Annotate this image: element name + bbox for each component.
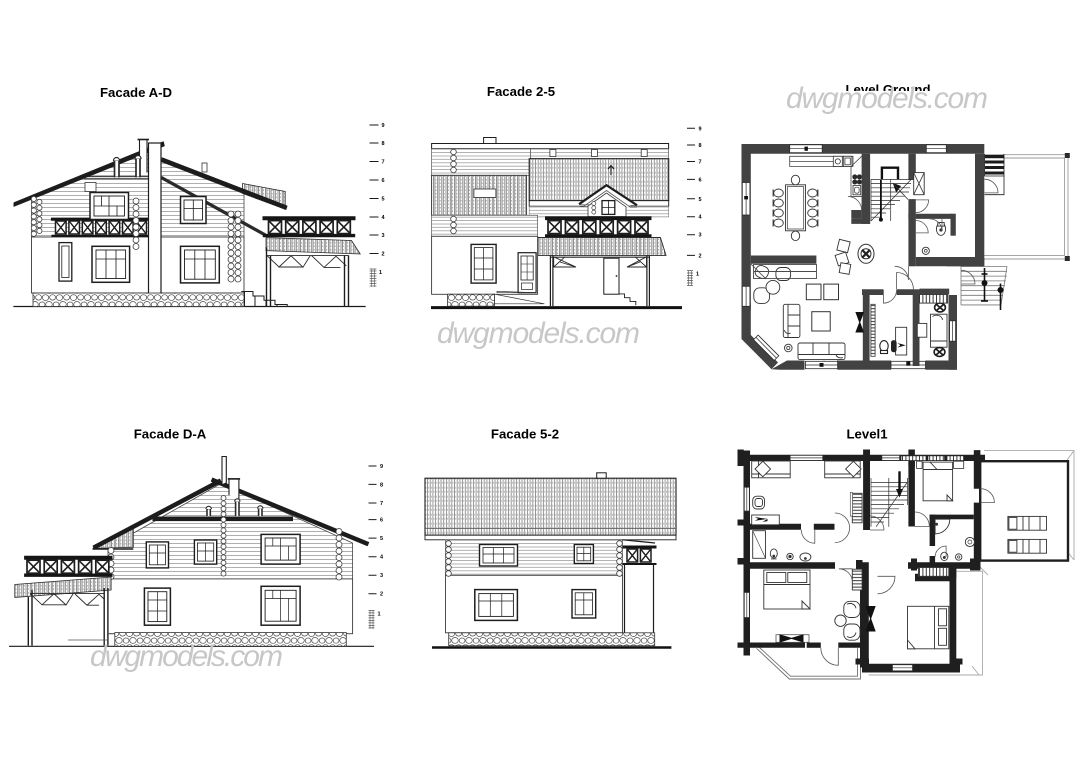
svg-text:Facade A-D: Facade A-D xyxy=(100,85,172,100)
svg-text:3: 3 xyxy=(382,233,385,239)
svg-text:2: 2 xyxy=(699,253,702,259)
svg-text:3: 3 xyxy=(380,573,383,579)
svg-text:6: 6 xyxy=(382,178,385,184)
svg-text:9: 9 xyxy=(380,464,383,470)
svg-text:8: 8 xyxy=(699,143,702,149)
svg-text:Facade 2-5: Facade 2-5 xyxy=(487,84,555,99)
svg-text:7: 7 xyxy=(380,501,383,507)
svg-text:2: 2 xyxy=(382,252,385,258)
svg-text:8: 8 xyxy=(380,482,383,488)
svg-text:3: 3 xyxy=(699,233,702,239)
svg-text:5: 5 xyxy=(382,197,385,203)
svg-text:4: 4 xyxy=(380,555,384,561)
svg-text:6: 6 xyxy=(699,177,702,183)
svg-text:4: 4 xyxy=(382,215,386,221)
svg-text:6: 6 xyxy=(380,518,383,524)
svg-text:7: 7 xyxy=(382,160,385,166)
svg-text:1: 1 xyxy=(378,611,381,617)
svg-text:5: 5 xyxy=(699,197,702,203)
svg-text:dwgmodels.com: dwgmodels.com xyxy=(437,317,640,350)
svg-text:Facade D-A: Facade D-A xyxy=(134,427,207,442)
svg-text:1: 1 xyxy=(696,272,699,278)
svg-text:Level1: Level1 xyxy=(846,427,887,442)
svg-text:dwgmodels.com: dwgmodels.com xyxy=(90,640,283,673)
svg-text:9: 9 xyxy=(699,126,702,132)
svg-text:5: 5 xyxy=(380,536,383,542)
svg-text:7: 7 xyxy=(699,160,702,166)
svg-text:9: 9 xyxy=(382,123,385,129)
svg-text:dwgmodels.com: dwgmodels.com xyxy=(786,82,988,115)
svg-text:4: 4 xyxy=(699,215,703,221)
svg-text:1: 1 xyxy=(379,270,382,276)
svg-text:Facade 5-2: Facade 5-2 xyxy=(491,427,559,442)
svg-text:2: 2 xyxy=(380,592,383,598)
svg-text:8: 8 xyxy=(382,141,385,147)
